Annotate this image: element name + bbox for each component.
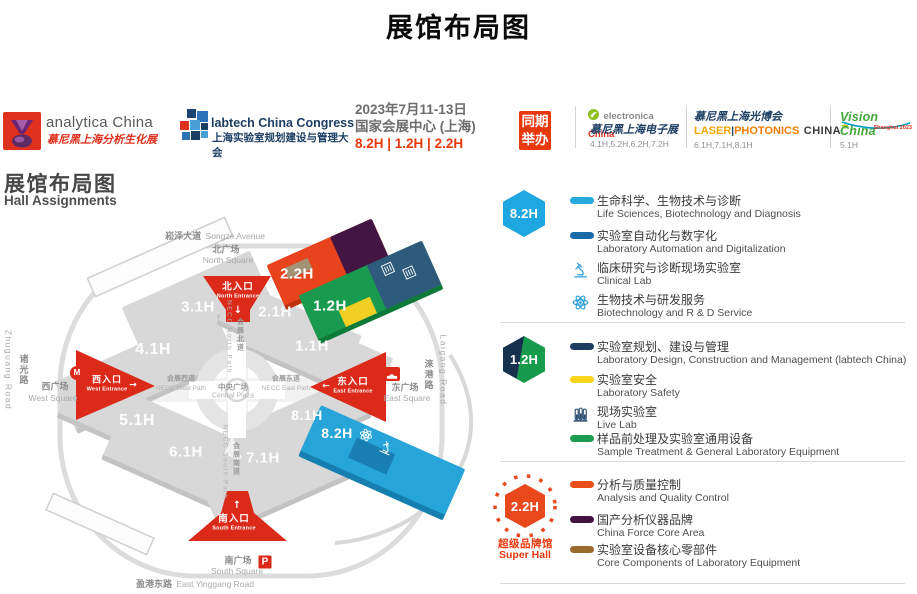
hall-label-1-2: 1.2H bbox=[313, 299, 347, 314]
category-swatch bbox=[570, 232, 594, 239]
category-swatch bbox=[570, 546, 594, 553]
hall-assignment-page: 展馆布局图 analytica China 慕尼黑上海分析生化展 labtech… bbox=[0, 0, 917, 594]
road-zhuguang-en: Zhuguang Road bbox=[4, 330, 13, 410]
legend: 8.2H 生命科学、生物技术与诊断 Life Sciences, Biotech… bbox=[500, 178, 912, 594]
legend-item-zh: 实验室安全 bbox=[597, 373, 680, 387]
north-square-en: North Square bbox=[203, 256, 254, 265]
east-entrance-cn: 东入口 bbox=[337, 377, 369, 387]
laser-halls: 6.1H,7.1H,8.1H bbox=[694, 140, 753, 150]
event-info: 2023年7月11-13日 国家会展中心 (上海) 8.2H | 1.2H | … bbox=[355, 101, 476, 152]
hall-label-3-1: 3.1H bbox=[181, 300, 215, 315]
legend-item-en: Analysis and Quality Control bbox=[597, 492, 729, 504]
microscope-icon bbox=[572, 262, 589, 279]
legend-item: 实验室规划、建设与管理 Laboratory Design, Construct… bbox=[570, 340, 906, 366]
hall-label-8-2: 8.2H bbox=[321, 426, 353, 440]
event-venue: 国家会展中心 (上海) bbox=[355, 118, 476, 135]
west-entrance-en: West Entrance bbox=[87, 387, 128, 393]
east-entrance-en: East Entrance bbox=[333, 389, 372, 395]
legend-divider bbox=[500, 322, 905, 323]
road-songze-en: Songze Avenue bbox=[206, 231, 265, 241]
concurrent-badge-line2: 举办 bbox=[519, 131, 551, 149]
category-swatch bbox=[570, 197, 594, 204]
legend-item-zh: 实验室设备核心零部件 bbox=[597, 543, 800, 557]
labtech-icon bbox=[180, 109, 208, 143]
metro-icon: M bbox=[70, 366, 84, 380]
taxi-label: TAXI bbox=[384, 385, 400, 389]
legend-item-zh: 实验室自动化与数字化 bbox=[597, 229, 786, 243]
laser-word3: CHINA bbox=[804, 125, 841, 137]
analytica-icon bbox=[3, 112, 41, 150]
north-entrance-en: North Entrance bbox=[217, 294, 260, 300]
legend-item-zh: 样品前处理及实验室通用设备 bbox=[597, 432, 839, 446]
legend-item: 分析与质量控制 Analysis and Quality Control bbox=[570, 478, 729, 504]
legend-item: 生命科学、生物技术与诊断 Life Sciences, Biotechnolog… bbox=[570, 194, 801, 220]
category-swatch bbox=[570, 481, 594, 488]
legend-item: 实验室自动化与数字化 Laboratory Automation and Dig… bbox=[570, 229, 786, 255]
event-halls: 8.2H | 1.2H | 2.2H bbox=[355, 135, 476, 152]
legend-item-en: China Force Core Area bbox=[597, 527, 704, 539]
hall-label-5-1: 5.1H bbox=[119, 413, 155, 429]
legend-item-en: Life Sciences, Biotechnology and Diagnos… bbox=[597, 208, 801, 220]
electronica-icon bbox=[588, 109, 599, 120]
west-square-en: West Square bbox=[29, 394, 78, 403]
central-plaza-cn: 中央广场 bbox=[218, 383, 248, 391]
south-entrance-en: South Entrance bbox=[212, 526, 255, 532]
laser-word2: PHOTONICS bbox=[734, 125, 799, 137]
road-laigang-cn: 涞港路 bbox=[424, 359, 433, 391]
legend-item-en: Biotechnology and R & D Service bbox=[597, 307, 752, 319]
header-divider-2 bbox=[686, 106, 687, 148]
road-laigang-en: Laigang Road bbox=[439, 335, 448, 406]
road-songze-cn: 崧泽大道 bbox=[165, 231, 201, 241]
legend-item-zh: 分析与质量控制 bbox=[597, 478, 729, 492]
hall-label-2-2: 2.2H bbox=[280, 267, 314, 282]
analytica-name: analytica China bbox=[46, 114, 153, 131]
labtech-tagline: 上海实验室规划建设与管理大会 bbox=[212, 130, 355, 160]
legend-item-en: Laboratory Automation and Digitalization bbox=[597, 243, 786, 255]
path-necc-west-en: NECC West Path bbox=[156, 386, 206, 393]
taxi-icon: TAXI bbox=[384, 367, 400, 381]
legend-item: 生物技术与研发服务 Biotechnology and R & D Servic… bbox=[570, 293, 752, 319]
legend-divider bbox=[500, 583, 905, 584]
legend-badge-1-2: 1.2H bbox=[503, 336, 545, 383]
west-square-cn: 西广场 bbox=[41, 383, 68, 392]
analytica-tagline: 慕尼黑上海分析生化展 bbox=[47, 131, 157, 147]
path-necc-south-en: NECC South Path bbox=[221, 425, 228, 500]
north-entrance-arrow: ↓ bbox=[234, 306, 242, 316]
path-necc-north-cn: 会展北道 bbox=[237, 318, 244, 352]
vision-sub: Shanghai 2023 bbox=[868, 125, 912, 131]
electronica-halls: 4.1H,5.2H,6.2H,7.2H bbox=[590, 139, 669, 149]
path-necc-east-cn: 会展东道 bbox=[272, 376, 300, 383]
legend-item-en: Core Components of Laboratory Equipment bbox=[597, 557, 800, 569]
south-entrance-cn: 南入口 bbox=[218, 514, 250, 524]
map-title-en: Hall Assignments bbox=[4, 193, 117, 208]
super-hall-en: Super Hall bbox=[499, 549, 551, 561]
road-songze: 崧泽大道 Songze Avenue bbox=[165, 227, 265, 243]
north-entrance-cn: 北入口 bbox=[222, 282, 254, 292]
legend-badge-8-2: 8.2H bbox=[503, 190, 545, 237]
legend-item: 现场实验室 Live Lab bbox=[570, 405, 657, 431]
central-plaza-en: Central Plaza bbox=[212, 393, 254, 400]
legend-item: 国产分析仪器品牌 China Force Core Area bbox=[570, 513, 704, 539]
legend-item-zh: 国产分析仪器品牌 bbox=[597, 513, 704, 527]
legend-item-en: Live Lab bbox=[597, 419, 657, 431]
legend-item-zh: 实验室规划、建设与管理 bbox=[597, 340, 906, 354]
legend-item-zh: 临床研究与诊断现场实验室 bbox=[597, 261, 741, 275]
parking-icon: P bbox=[259, 556, 272, 569]
legend-divider bbox=[500, 461, 905, 462]
legend-item-en: Laboratory Safety bbox=[597, 387, 680, 399]
vision-halls: 5.1H bbox=[840, 140, 858, 150]
legend-item-zh: 生命科学、生物技术与诊断 bbox=[597, 194, 801, 208]
road-yinggang: 盈港东路 East Yinggang Road bbox=[136, 575, 254, 591]
road-yinggang-cn: 盈港东路 bbox=[136, 579, 172, 589]
atom-icon bbox=[572, 294, 589, 311]
south-square-en: South Square bbox=[211, 567, 263, 576]
page-title: 展馆布局图 bbox=[0, 6, 917, 45]
category-swatch bbox=[570, 435, 594, 442]
east-square-en: East Square bbox=[384, 394, 431, 403]
legend-item-zh: 生物技术与研发服务 bbox=[597, 293, 752, 307]
path-necc-east-en: NECC East Path bbox=[262, 386, 310, 393]
electronica-cn: 慕尼黑上海电子展 bbox=[590, 121, 678, 137]
legend-item-zh: 现场实验室 bbox=[597, 405, 657, 419]
hall-label-4-1: 4.1H bbox=[135, 342, 171, 358]
hall-map: 崧泽大道 Songze Avenue 北广场 North Square 西广场 … bbox=[0, 210, 500, 594]
west-entrance-arrow: → bbox=[129, 382, 137, 391]
path-necc-west-cn: 会展西道 bbox=[167, 376, 195, 383]
category-swatch bbox=[570, 343, 594, 350]
east-entrance-arrow: ← bbox=[322, 383, 330, 392]
legend-item-en: Clinical Lab bbox=[597, 275, 741, 287]
laser-word1: LASER bbox=[694, 125, 731, 137]
concurrent-badge: 同期 举办 bbox=[519, 111, 551, 150]
path-necc-north-en: NECC North Path bbox=[225, 300, 232, 374]
south-entrance-arrow: ↑ bbox=[233, 501, 241, 511]
hall-label-1-1: 1.1H bbox=[295, 339, 329, 354]
category-swatch bbox=[570, 516, 594, 523]
road-zhuguang-cn: 诸光路 bbox=[19, 354, 28, 386]
path-necc-south-cn: 会展南道 bbox=[233, 442, 240, 476]
hall-label-6-1: 6.1H bbox=[169, 445, 203, 460]
west-entrance-cn: 西入口 bbox=[92, 376, 122, 385]
south-square-cn: 南广场 bbox=[224, 557, 251, 566]
road-yinggang-en: East Yinggang Road bbox=[176, 579, 254, 589]
header-divider-1 bbox=[575, 106, 576, 148]
labtech-name: labtech China Congress bbox=[211, 116, 354, 130]
legend-item: 实验室安全 Laboratory Safety bbox=[570, 373, 680, 399]
taxi-car-icon bbox=[386, 373, 398, 380]
concurrent-badge-line1: 同期 bbox=[519, 113, 551, 131]
laser-wordmark: LASER|PHOTONICS CHINA+ bbox=[694, 121, 849, 139]
legend-item: 样品前处理及实验室通用设备 Sample Treatment & General… bbox=[570, 432, 839, 458]
north-square-cn: 北广场 bbox=[212, 246, 239, 255]
test-tubes-icon bbox=[572, 406, 589, 423]
legend-item: 临床研究与诊断现场实验室 Clinical Lab bbox=[570, 261, 741, 287]
hall-label-8-1: 8.1H bbox=[291, 408, 323, 422]
hall-label-7-1: 7.1H bbox=[246, 451, 280, 466]
legend-item: 实验室设备核心零部件 Core Components of Laboratory… bbox=[570, 543, 800, 569]
hall-label-2-1: 2.1H bbox=[258, 305, 292, 320]
category-swatch bbox=[570, 376, 594, 383]
legend-item-en: Laboratory Design, Construction and Mana… bbox=[597, 354, 906, 366]
event-date: 2023年7月11-13日 bbox=[355, 101, 476, 118]
legend-item-en: Sample Treatment & General Laboratory Eq… bbox=[597, 446, 839, 458]
